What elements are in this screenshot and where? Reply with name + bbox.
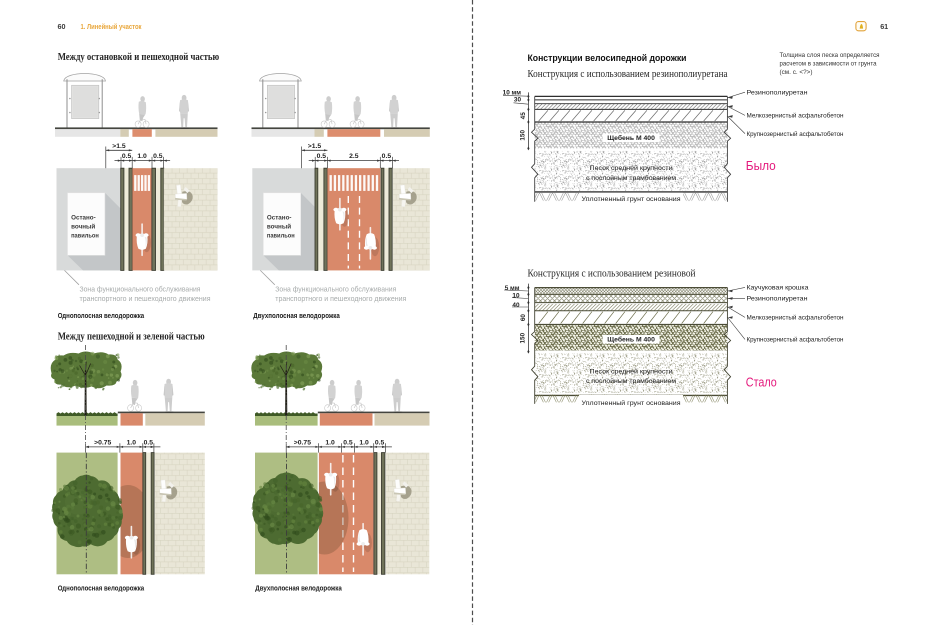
svg-text:0.5: 0.5 bbox=[382, 153, 392, 160]
svg-text:Песок средней крупности: Песок средней крупности bbox=[590, 164, 673, 172]
svg-text:0.5: 0.5 bbox=[317, 153, 327, 160]
svg-text:Песок средней крупности: Песок средней крупности bbox=[590, 367, 673, 375]
svg-text:61: 61 bbox=[880, 22, 888, 31]
svg-text:(см. с. <?>): (см. с. <?>) bbox=[780, 69, 813, 76]
svg-text:Крупнозернистый асфальтобетон: Крупнозернистый асфальтобетон bbox=[747, 336, 844, 344]
svg-text:Зона функционального обслужива: Зона функционального обслуживания bbox=[80, 286, 201, 294]
svg-text:0.5: 0.5 bbox=[153, 153, 163, 160]
svg-text:Двухполосная велодорожка: Двухполосная велодорожка bbox=[253, 311, 340, 320]
svg-text:транспортного и пешеходного дв: транспортного и пешеходного движения bbox=[80, 296, 211, 303]
svg-text:Остано-: Остано- bbox=[71, 215, 96, 222]
svg-text:вочный: вочный bbox=[71, 223, 95, 231]
svg-text:1. Линейный участок: 1. Линейный участок bbox=[81, 22, 142, 31]
svg-text:Конструкция с использованием р: Конструкция с использованием резиновой bbox=[528, 269, 697, 280]
svg-text:Между пешеходной и зеленой час: Между пешеходной и зеленой частью bbox=[58, 332, 205, 343]
svg-text:Мелкозернистый асфальтобетон: Мелкозернистый асфальтобетон bbox=[747, 112, 844, 120]
svg-text:расчетом в зависимости от грун: расчетом в зависимости от грунта bbox=[780, 61, 877, 68]
svg-text:1.0: 1.0 bbox=[137, 153, 147, 160]
svg-text:2.5: 2.5 bbox=[349, 153, 359, 160]
svg-text:40: 40 bbox=[512, 302, 520, 309]
svg-text:150: 150 bbox=[519, 130, 526, 141]
svg-text:Остано-: Остано- bbox=[267, 215, 292, 222]
svg-text:вочный: вочный bbox=[267, 223, 291, 231]
svg-text:Уплотненный грунт основания: Уплотненный грунт основания bbox=[582, 399, 681, 407]
svg-text:Двухполосная велодорожка: Двухполосная велодорожка bbox=[255, 583, 342, 592]
svg-text:10: 10 bbox=[512, 292, 520, 299]
svg-text:>0.75: >0.75 bbox=[294, 439, 311, 446]
svg-text:1.0: 1.0 bbox=[127, 439, 137, 446]
svg-text:30: 30 bbox=[514, 97, 522, 104]
svg-text:Резинополиуретан: Резинополиуретан bbox=[747, 89, 809, 96]
svg-text:>0.75: >0.75 bbox=[94, 439, 111, 446]
svg-text:Конструкция с использованием р: Конструкция с использованием резинополиу… bbox=[528, 69, 729, 80]
svg-text:павильон: павильон bbox=[267, 233, 295, 240]
svg-text:0.5: 0.5 bbox=[122, 153, 132, 160]
svg-text:5 мм: 5 мм bbox=[505, 285, 520, 292]
svg-text:1.0: 1.0 bbox=[359, 439, 369, 446]
svg-text:60: 60 bbox=[58, 22, 66, 31]
svg-text:>1.5: >1.5 bbox=[112, 143, 126, 150]
svg-text:0.5: 0.5 bbox=[343, 439, 353, 446]
svg-text:Уплотненный грунт основания: Уплотненный грунт основания bbox=[582, 195, 681, 203]
svg-text:Щебень М 400: Щебень М 400 bbox=[607, 134, 655, 142]
svg-text:с послойным трамбованием: с послойным трамбованием bbox=[586, 174, 676, 182]
svg-text:Между остановкой и пешеходной: Между остановкой и пешеходной частью bbox=[58, 52, 220, 63]
svg-text:150: 150 bbox=[519, 332, 526, 343]
svg-text:Мелкозернистый асфальтобетон: Мелкозернистый асфальтобетон bbox=[747, 314, 844, 322]
svg-text:0.5: 0.5 bbox=[144, 439, 154, 446]
svg-text:транспортного и пешеходного дв: транспортного и пешеходного движения bbox=[275, 296, 406, 303]
svg-text:Однополосная велодорожка: Однополосная велодорожка bbox=[58, 311, 145, 320]
svg-text:60: 60 bbox=[520, 314, 527, 322]
svg-text:Однополосная велодорожка: Однополосная велодорожка bbox=[58, 583, 145, 592]
svg-text:Было: Было bbox=[746, 158, 776, 173]
svg-text:1.0: 1.0 bbox=[325, 439, 335, 446]
svg-text:Зона функционального обслужива: Зона функционального обслуживания bbox=[275, 286, 396, 294]
svg-text:0.5: 0.5 bbox=[375, 439, 385, 446]
svg-text:павильон: павильон bbox=[71, 233, 99, 240]
svg-text:Резинополиуретан: Резинополиуретан bbox=[747, 296, 809, 303]
svg-text:Стало: Стало bbox=[746, 374, 777, 389]
svg-text:Щебень М 400: Щебень М 400 bbox=[607, 335, 655, 343]
svg-text:Крупнозернистый асфальтобетон: Крупнозернистый асфальтобетон bbox=[747, 130, 844, 138]
svg-text:Конструкции велосипедной дорож: Конструкции велосипедной дорожки bbox=[528, 52, 687, 63]
svg-text:с послойным трамбованием: с послойным трамбованием bbox=[586, 377, 676, 385]
svg-text:Толщина слоя песка определяетс: Толщина слоя песка определяется bbox=[780, 52, 881, 59]
svg-text:45: 45 bbox=[520, 112, 527, 120]
svg-text:>1.5: >1.5 bbox=[308, 143, 322, 150]
svg-text:Каучуковая крошка: Каучуковая крошка bbox=[747, 285, 809, 292]
